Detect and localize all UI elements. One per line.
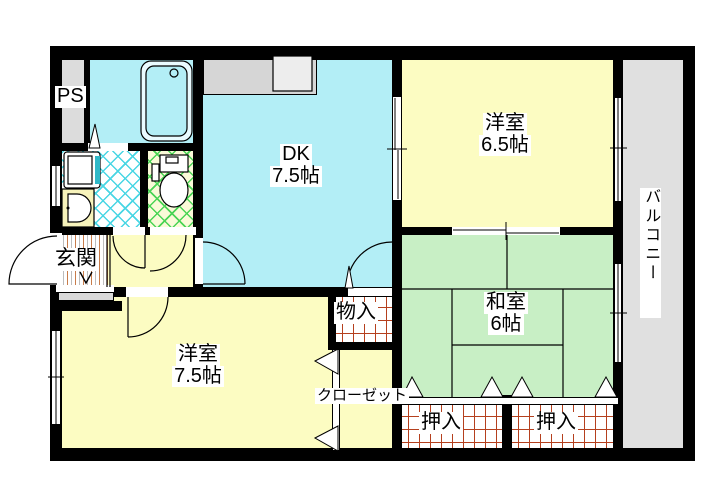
label-japanese-room: 和室 6帖 <box>461 292 551 335</box>
label-western-65: 洋室 6.5帖 <box>460 113 550 156</box>
label-dk: DK 7.5帖 <box>251 144 341 187</box>
window-balcony-south <box>614 263 622 363</box>
label-entrance: 玄関 <box>53 248 99 271</box>
sliding-door-dk-west65 <box>393 97 401 200</box>
western-65-size: 6.5帖 <box>479 135 531 157</box>
closet-text: クローゼット <box>315 388 409 404</box>
floor-plan: PS 玄関 DK 7.5帖 洋室 6.5帖 洋室 7.5帖 和室 6帖 物入 押… <box>0 0 728 494</box>
entrance-text: 玄関 <box>53 248 99 271</box>
dk-name: DK <box>280 144 312 166</box>
japanese-room-size: 6帖 <box>488 314 523 336</box>
door-opening-toilet <box>150 227 196 235</box>
window-west75-left <box>51 330 61 425</box>
wall-outer-top <box>50 46 695 60</box>
wall-monoire-bottom <box>328 342 400 350</box>
door-opening-dk <box>195 238 203 284</box>
door-opening-west75 <box>126 287 168 297</box>
wall-entrance-step <box>50 301 122 311</box>
label-storage: 物入 <box>334 302 378 324</box>
wall-outer-bottom <box>50 448 695 461</box>
wall-bath-bottom <box>56 143 203 151</box>
ps-text: PS <box>55 86 86 108</box>
label-western-75: 洋室 7.5帖 <box>153 344 243 387</box>
room-hall <box>100 230 197 294</box>
western-65-name: 洋室 <box>483 113 527 135</box>
door-opening-bath <box>88 143 128 151</box>
japanese-room-name: 和室 <box>484 292 528 314</box>
sliding-door-west65-japanese <box>452 227 560 235</box>
room-bathroom <box>84 55 199 147</box>
wall-outer-right <box>683 46 695 461</box>
window-washroom-left <box>51 165 61 207</box>
oshiire-threshold <box>398 397 618 405</box>
room-washroom <box>60 147 146 231</box>
label-oshiire-left: 押入 <box>419 412 463 434</box>
label-oshiire-right: 押入 <box>534 412 578 434</box>
oshiire-left-text: 押入 <box>419 412 463 434</box>
label-closet: クローゼット <box>315 388 409 404</box>
western-75-name: 洋室 <box>176 344 220 366</box>
wall-washroom-toilet <box>140 149 148 235</box>
room-toilet <box>146 147 198 231</box>
entrance-step-white <box>56 285 114 292</box>
door-opening-washroom <box>113 227 145 235</box>
oshiire-right-text: 押入 <box>534 412 578 434</box>
label-ps: PS <box>55 86 86 108</box>
entrance-step-gray <box>58 292 114 301</box>
balcony-text: バルコニー <box>640 188 661 318</box>
western-75-size: 7.5帖 <box>172 366 224 388</box>
dk-size: 7.5帖 <box>270 166 322 188</box>
door-opening-monoire <box>348 287 392 297</box>
window-balcony-north <box>614 97 622 202</box>
label-balcony: バルコニー <box>640 188 661 318</box>
storage-text: 物入 <box>334 302 378 324</box>
